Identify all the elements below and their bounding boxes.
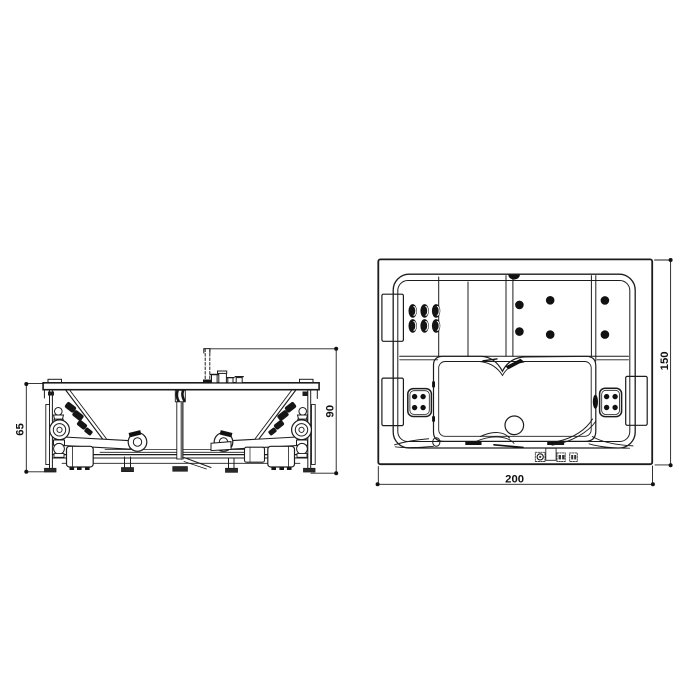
svg-text:65: 65	[15, 423, 27, 436]
svg-text:150: 150	[659, 351, 671, 370]
svg-text:200: 200	[505, 474, 524, 486]
svg-text:90: 90	[324, 405, 336, 418]
